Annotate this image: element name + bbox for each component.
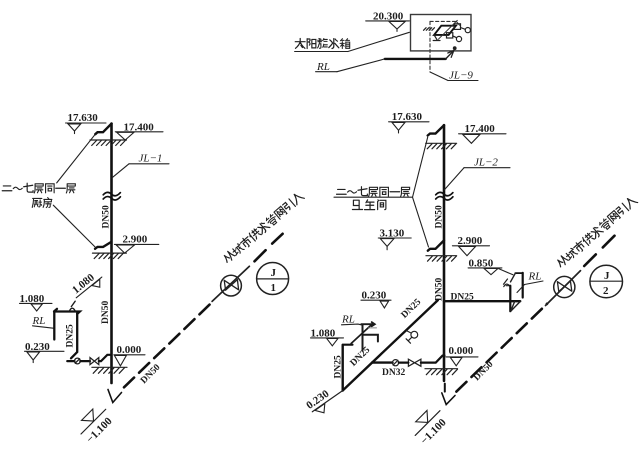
svg-text:RL: RL (341, 314, 355, 326)
svg-text:JL−1: JL−1 (139, 153, 163, 165)
svg-text:DN32: DN32 (382, 368, 405, 378)
svg-text:DN25: DN25 (334, 355, 344, 378)
svg-text:JL−2: JL−2 (474, 156, 498, 168)
svg-text:JL−9: JL−9 (449, 70, 473, 82)
svg-text:2: 2 (603, 285, 609, 297)
svg-text:2.900: 2.900 (123, 233, 148, 245)
svg-text:DN50: DN50 (435, 278, 445, 301)
svg-text:DN25: DN25 (451, 292, 474, 302)
svg-text:17.400: 17.400 (465, 123, 496, 135)
svg-text:DN50: DN50 (435, 205, 445, 228)
svg-text:DN50: DN50 (102, 205, 112, 228)
svg-text:RL: RL (32, 315, 46, 327)
svg-text:1: 1 (271, 282, 277, 294)
svg-text:J: J (271, 267, 277, 279)
svg-text:J: J (604, 270, 610, 282)
svg-text:0.000: 0.000 (449, 345, 474, 357)
svg-text:RL: RL (528, 271, 542, 283)
svg-text:DN25: DN25 (66, 324, 76, 347)
svg-text:17.630: 17.630 (68, 112, 99, 124)
svg-text:DN50: DN50 (101, 301, 111, 324)
